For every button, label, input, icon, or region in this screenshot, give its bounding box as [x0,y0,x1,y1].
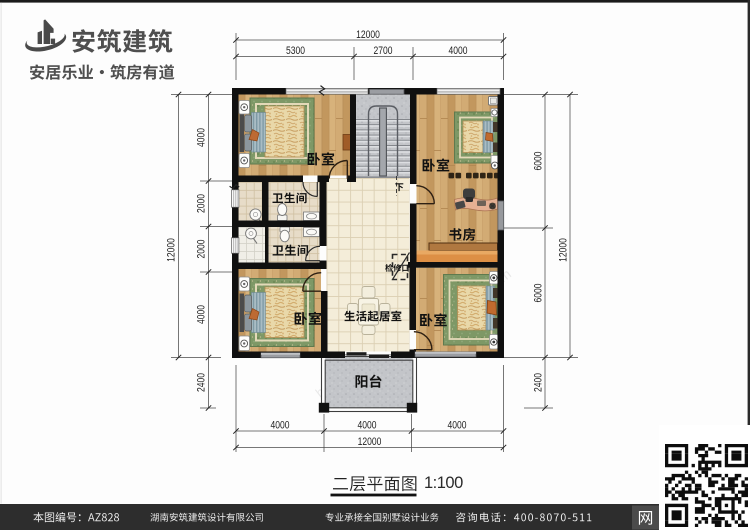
svg-text:2000: 2000 [196,194,208,213]
svg-text:6000: 6000 [533,283,545,302]
svg-text:12000: 12000 [356,29,380,41]
svg-text:4000: 4000 [196,305,208,324]
svg-text:12000: 12000 [558,238,570,262]
svg-text:2000: 2000 [196,239,208,258]
svg-text:5300: 5300 [286,45,305,57]
svg-text:6000: 6000 [533,151,545,170]
svg-text:12000: 12000 [166,238,178,262]
svg-text:12000: 12000 [358,436,382,448]
svg-text:4000: 4000 [358,420,377,432]
svg-text:2700: 2700 [374,45,393,57]
svg-text:4000: 4000 [449,45,468,57]
svg-text:4000: 4000 [271,420,290,432]
svg-text:2400: 2400 [196,373,208,392]
svg-text:4000: 4000 [196,128,208,147]
svg-text:4000: 4000 [448,420,467,432]
svg-text:2400: 2400 [533,373,545,392]
svg-text:1:100: 1:100 [424,474,463,492]
